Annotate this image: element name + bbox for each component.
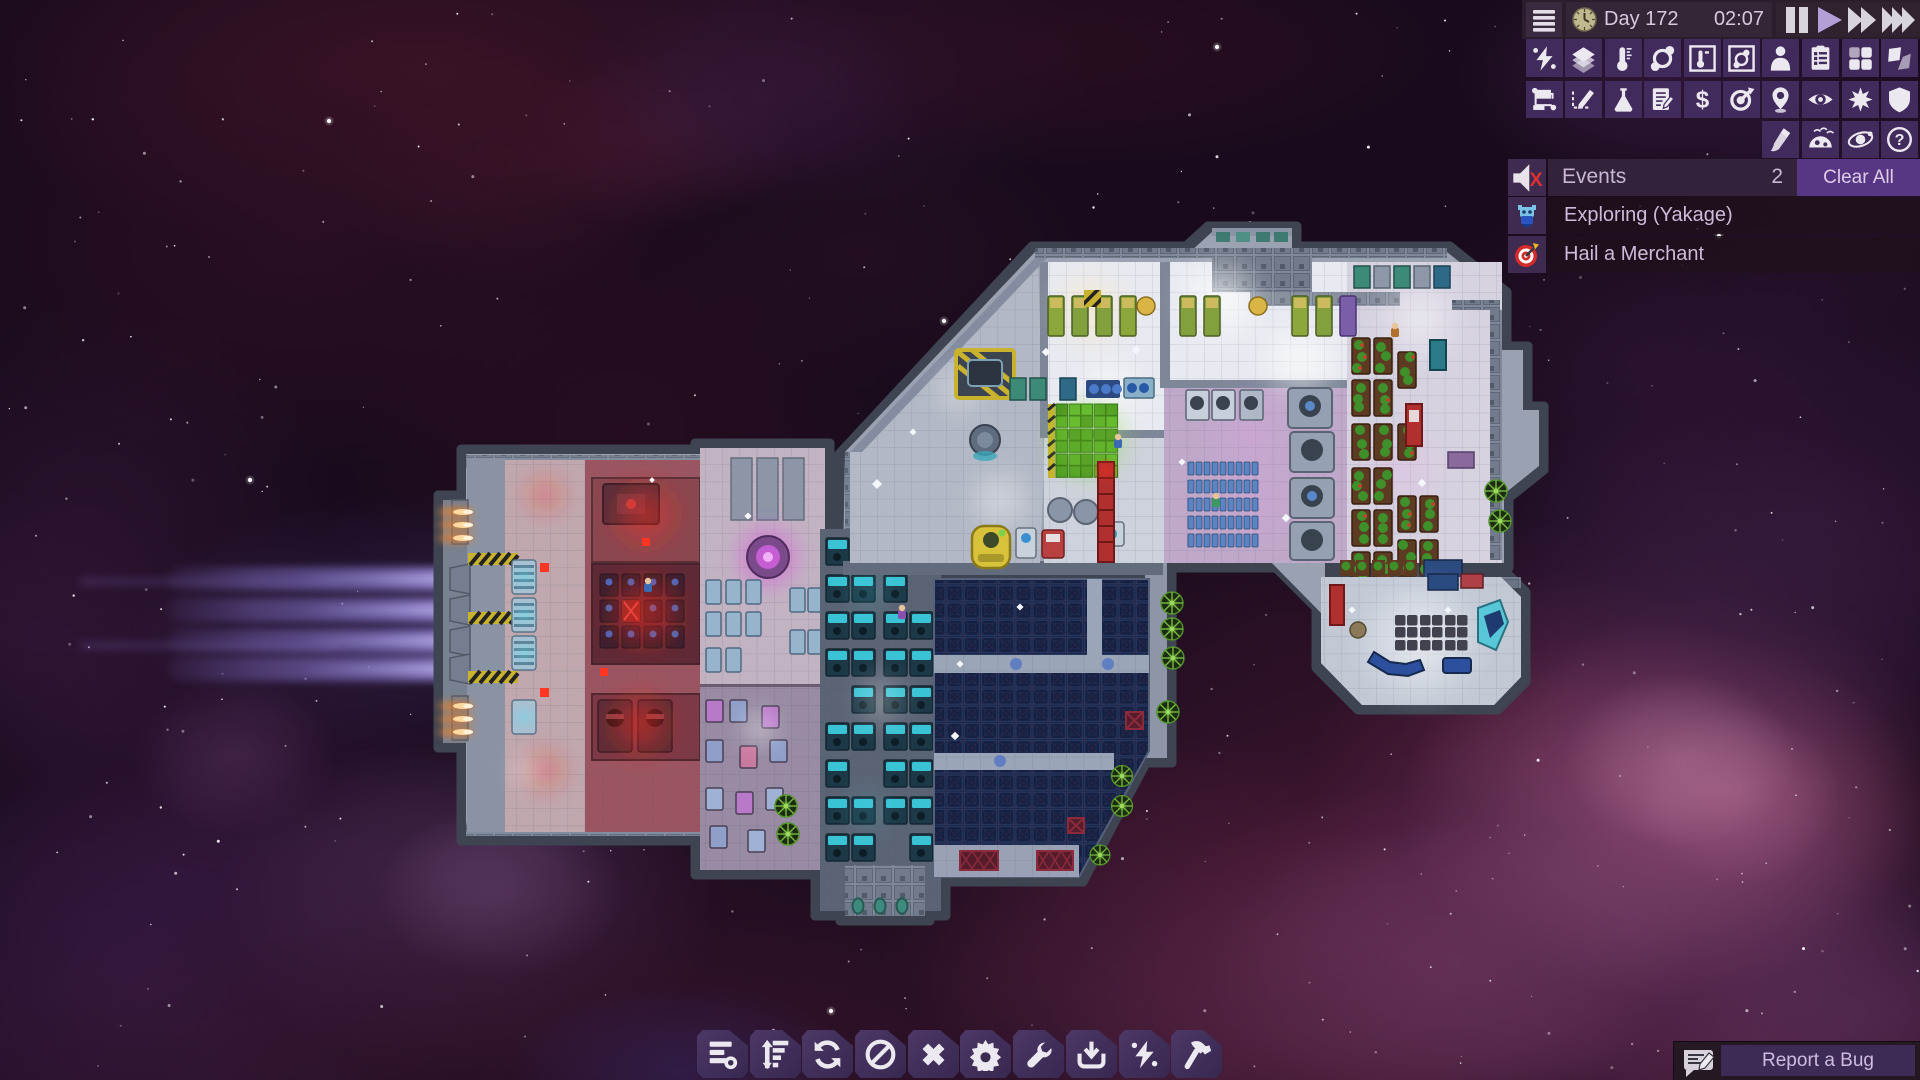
svg-text:$: $: [1696, 87, 1710, 114]
svg-text:?: ?: [1895, 131, 1905, 149]
svg-text:X: X: [1530, 169, 1543, 191]
